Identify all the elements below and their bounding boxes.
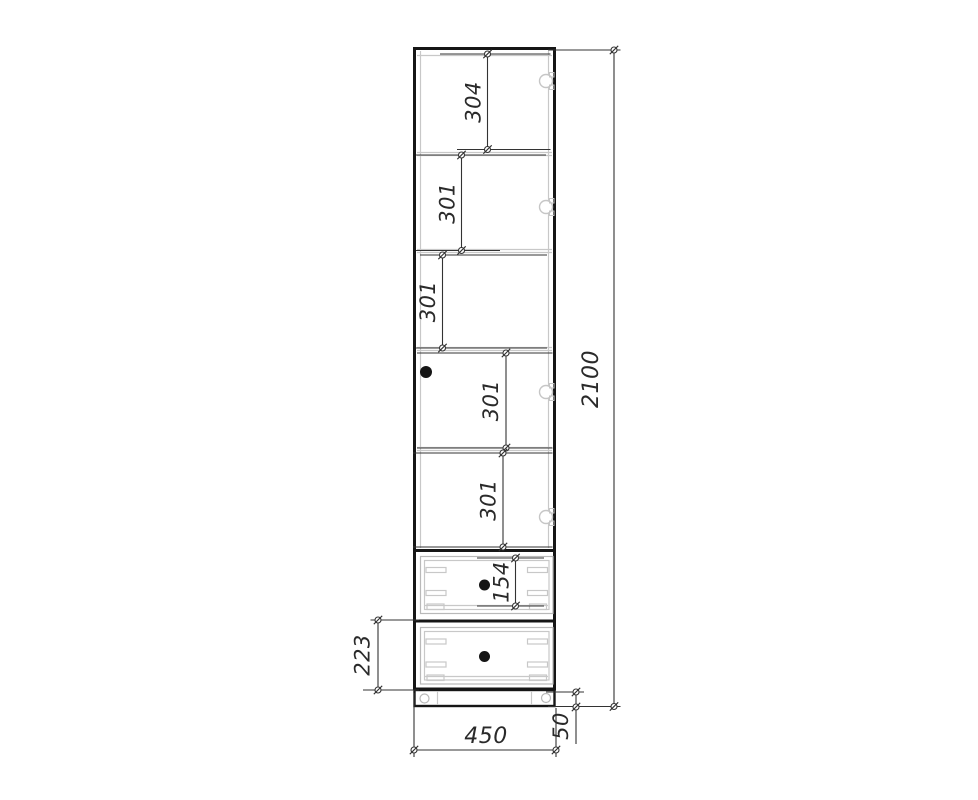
dim-bottom-drawer: 223 [351, 616, 420, 694]
drawer-slide-block [427, 604, 444, 610]
drawer-rail [528, 591, 548, 596]
dimension-endpoint-marker [410, 746, 418, 754]
dim-label: 301 [479, 380, 503, 422]
dim-section-5: 301 [413, 449, 553, 551]
dimension-endpoint-marker [572, 703, 580, 711]
cabinet-body [413, 49, 556, 707]
dim-label: 223 [351, 634, 375, 676]
hinge-cup-icon [540, 509, 555, 526]
dimension-endpoint-marker [610, 702, 618, 710]
cabinet-elevation-drawing: 304 301 301 301 [0, 0, 978, 800]
dimension-endpoint-marker [552, 746, 560, 754]
drawer-knob-icon [479, 580, 490, 591]
hinge-cup-icon [540, 384, 555, 401]
dim-section-4: 301 [417, 349, 553, 452]
dim-section-3: 301 [416, 251, 547, 352]
door-knob-icon [420, 366, 432, 378]
drawer-rail [426, 591, 446, 596]
plinth-outline [415, 690, 555, 706]
dimension-endpoint-marker [483, 50, 491, 58]
drawer-rail [426, 639, 446, 644]
drawer-rail [426, 662, 446, 667]
dim-label: 301 [477, 479, 501, 521]
cabinet-outline [415, 49, 555, 690]
dim-top-section: 304 [440, 50, 551, 154]
dim-label: 154 [490, 561, 514, 603]
drawer-rail [528, 639, 548, 644]
dim-label: 450 [464, 724, 508, 749]
dim-label: 50 [549, 712, 573, 740]
dimension-endpoint-marker [610, 46, 618, 54]
drawer-bottom [421, 628, 554, 685]
plinth-feet [420, 691, 551, 705]
hinge-cup-icon [540, 199, 555, 216]
drawer-top [421, 557, 554, 614]
dimension-endpoint-marker [572, 688, 580, 696]
dimension-endpoint-marker [374, 686, 382, 694]
drawer-rail [528, 662, 548, 667]
dim-label: 304 [462, 81, 486, 123]
hinges [540, 73, 555, 526]
dim-overall-height: 2100 [548, 46, 621, 711]
dim-plinth-height: 50 [546, 688, 584, 744]
dim-label: 301 [436, 182, 460, 224]
drawing-canvas: 304 301 301 301 [0, 0, 978, 800]
foot-icon [420, 694, 429, 703]
foot-icon [542, 694, 551, 703]
dim-label: 2100 [579, 350, 604, 408]
drawer-knob-icon [479, 651, 490, 662]
drawer-rail [528, 568, 548, 573]
drawer-slide-block [530, 604, 547, 610]
dim-overall-width: 450 [410, 693, 560, 757]
dimension-endpoint-marker [374, 616, 382, 624]
drawer-rail [426, 568, 446, 573]
dimension-endpoint-marker [457, 246, 465, 254]
hinge-cup-icon [540, 73, 555, 90]
dim-section-2: 301 [416, 151, 546, 255]
dim-label: 301 [416, 281, 440, 323]
